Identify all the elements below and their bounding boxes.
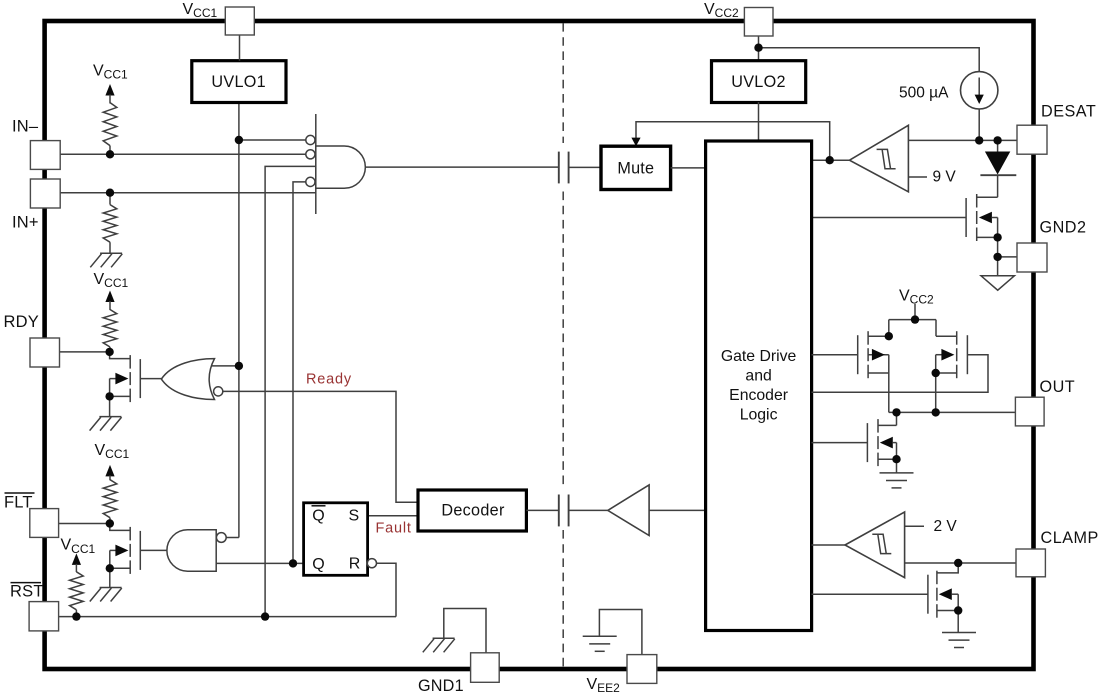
svg-text:CLAMP: CLAMP bbox=[1041, 529, 1099, 547]
svg-text:Q: Q bbox=[312, 556, 324, 573]
svg-text:500 µA: 500 µA bbox=[899, 84, 949, 101]
svg-text:Fault: Fault bbox=[376, 521, 412, 537]
svg-text:and: and bbox=[745, 368, 771, 385]
svg-text:R: R bbox=[349, 556, 361, 573]
svg-text:DESAT: DESAT bbox=[1041, 103, 1096, 121]
svg-text:Decoder: Decoder bbox=[441, 502, 505, 520]
svg-text:2 V: 2 V bbox=[934, 518, 958, 535]
svg-text:Gate Drive: Gate Drive bbox=[721, 348, 797, 365]
svg-text:RST: RST bbox=[10, 583, 44, 601]
svg-text:GND1: GND1 bbox=[418, 677, 464, 695]
svg-text:OUT: OUT bbox=[1040, 378, 1076, 396]
svg-text:S: S bbox=[349, 508, 360, 525]
svg-text:Ready: Ready bbox=[306, 372, 352, 388]
svg-text:FLT: FLT bbox=[4, 494, 33, 512]
svg-text:Mute: Mute bbox=[617, 159, 654, 177]
svg-text:IN+: IN+ bbox=[12, 213, 39, 231]
svg-text:Encoder: Encoder bbox=[729, 387, 788, 404]
svg-text:Logic: Logic bbox=[740, 407, 778, 424]
svg-text:RDY: RDY bbox=[4, 313, 39, 331]
svg-text:UVLO2: UVLO2 bbox=[731, 73, 786, 91]
svg-text:IN–: IN– bbox=[12, 118, 39, 136]
svg-text:Q: Q bbox=[312, 508, 324, 525]
svg-text:GND2: GND2 bbox=[1040, 219, 1087, 237]
svg-text:UVLO1: UVLO1 bbox=[211, 73, 266, 91]
svg-text:9 V: 9 V bbox=[933, 169, 957, 186]
